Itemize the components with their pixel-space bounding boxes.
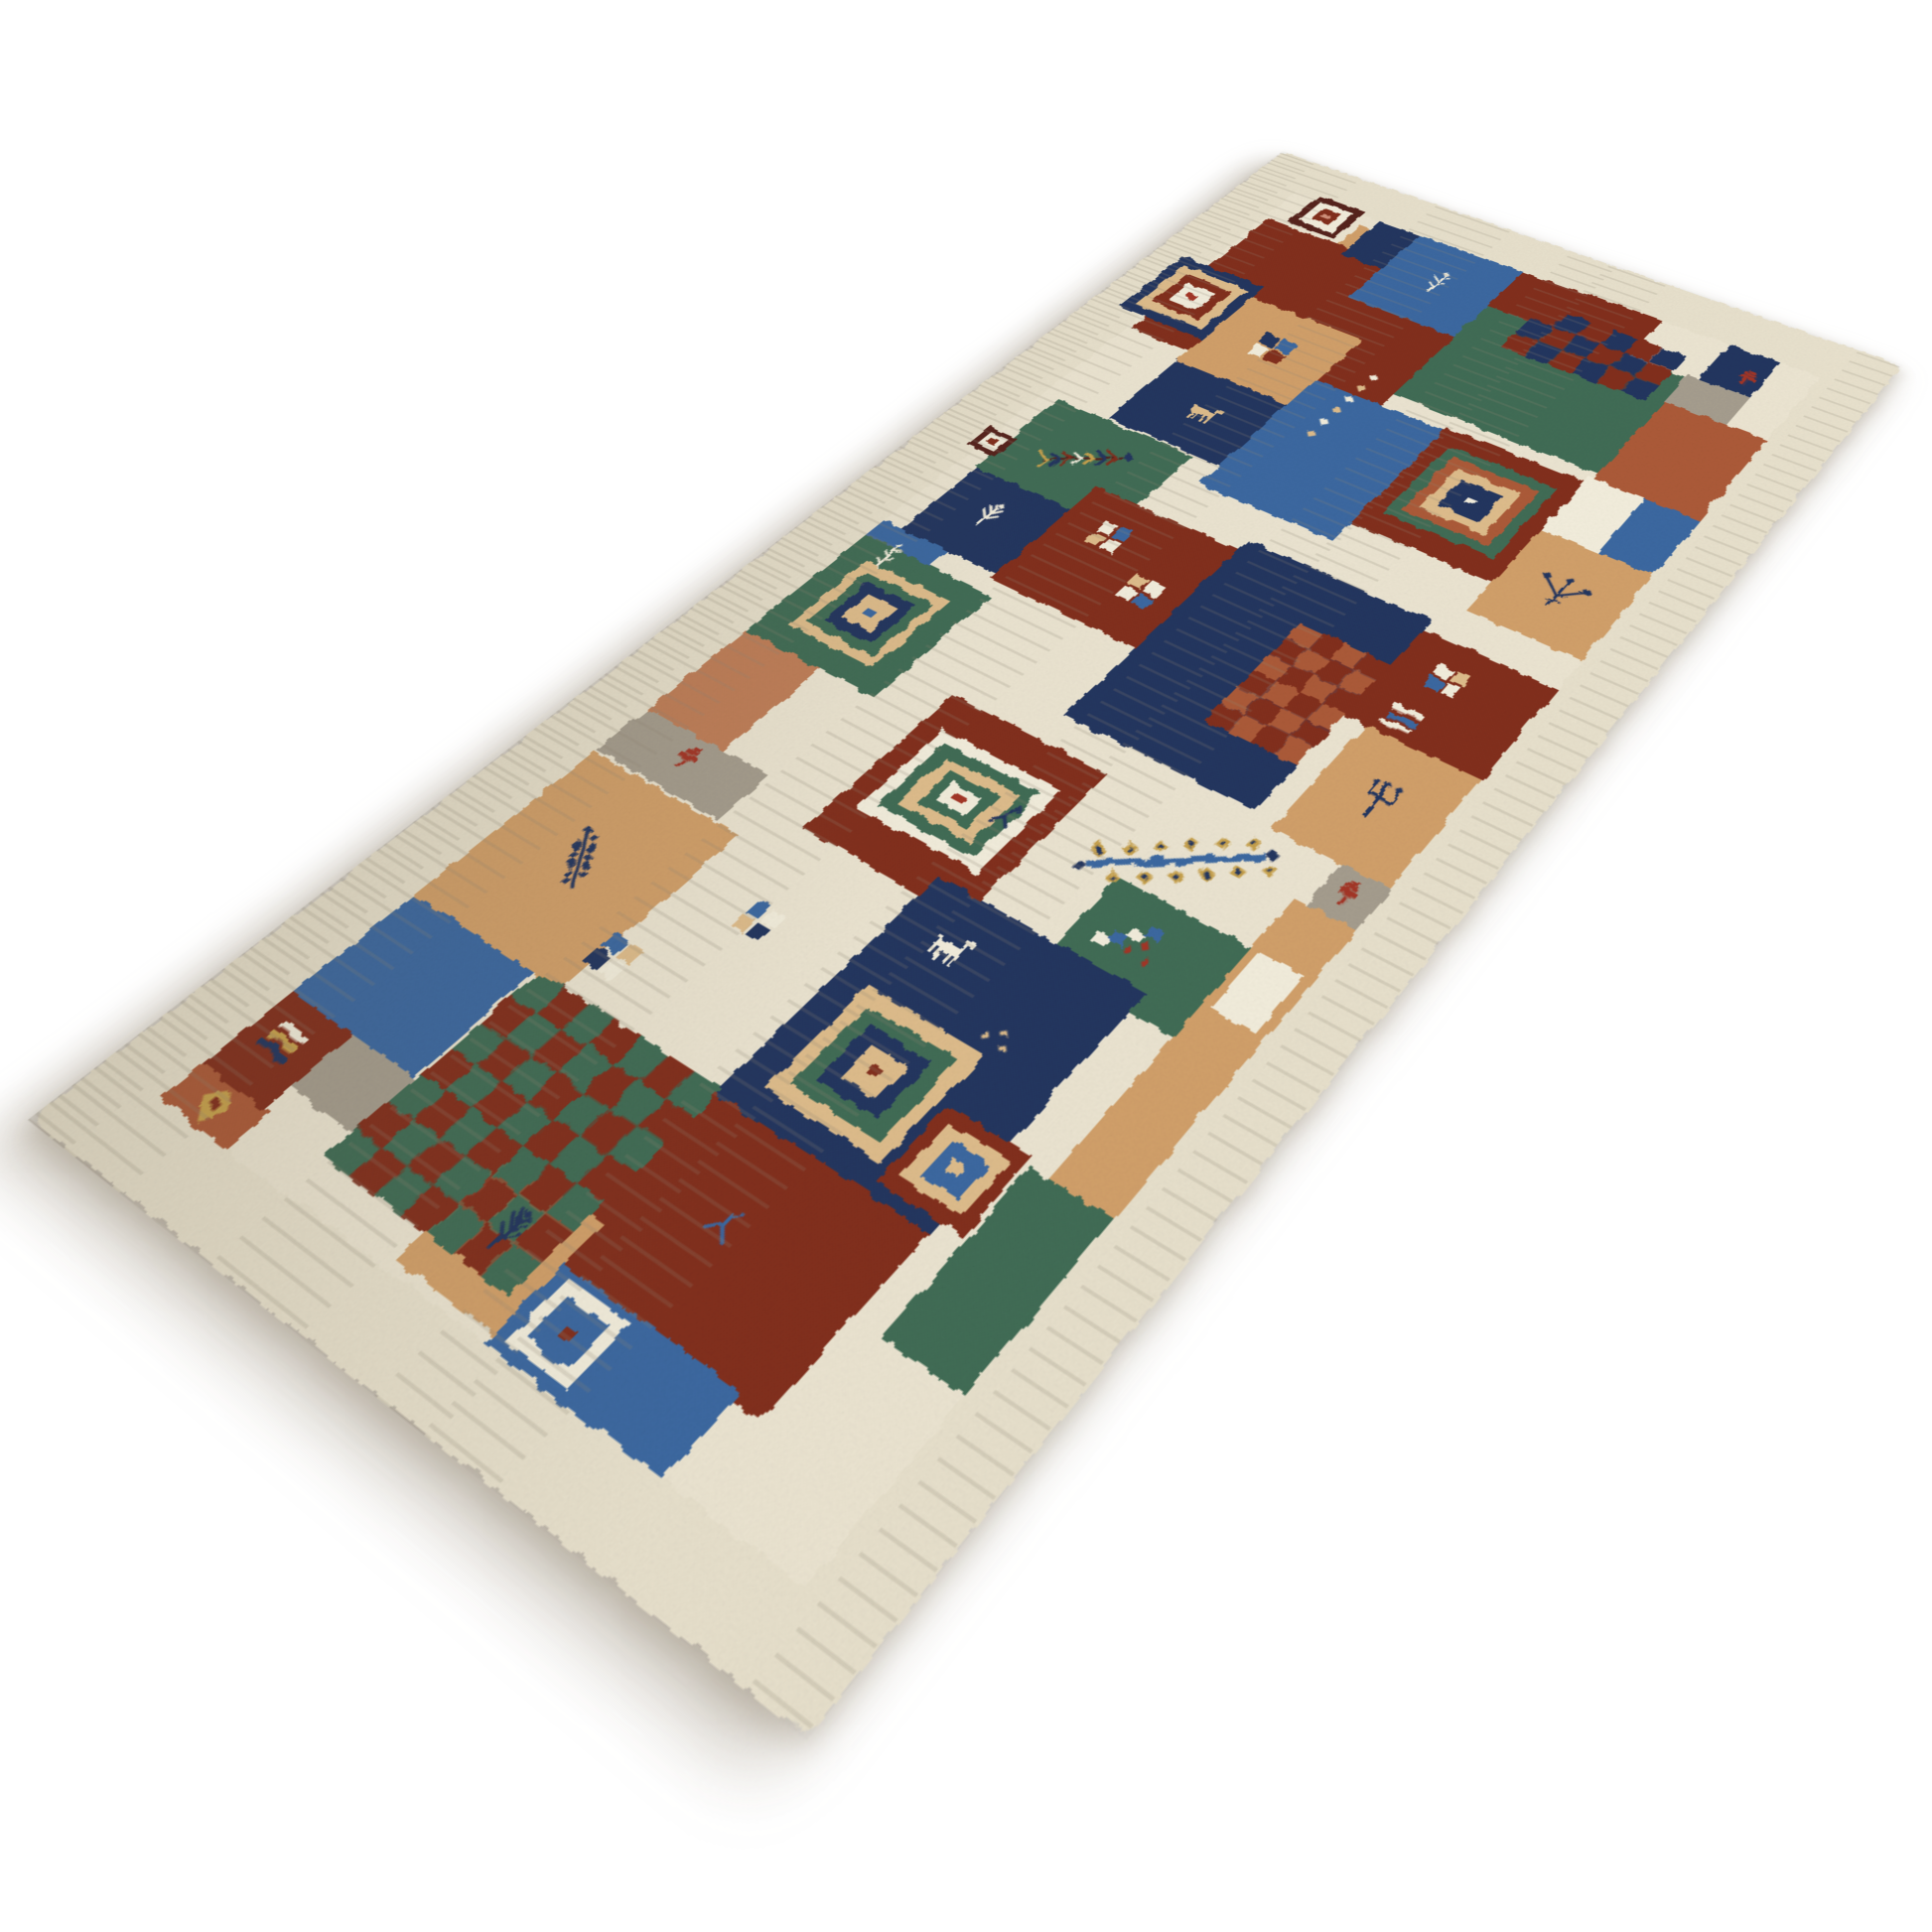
light-shading [28,151,1904,1740]
photo-background [0,0,1932,1932]
gabbeh-rug [28,151,1904,1740]
rug-artwork [28,151,1904,1740]
